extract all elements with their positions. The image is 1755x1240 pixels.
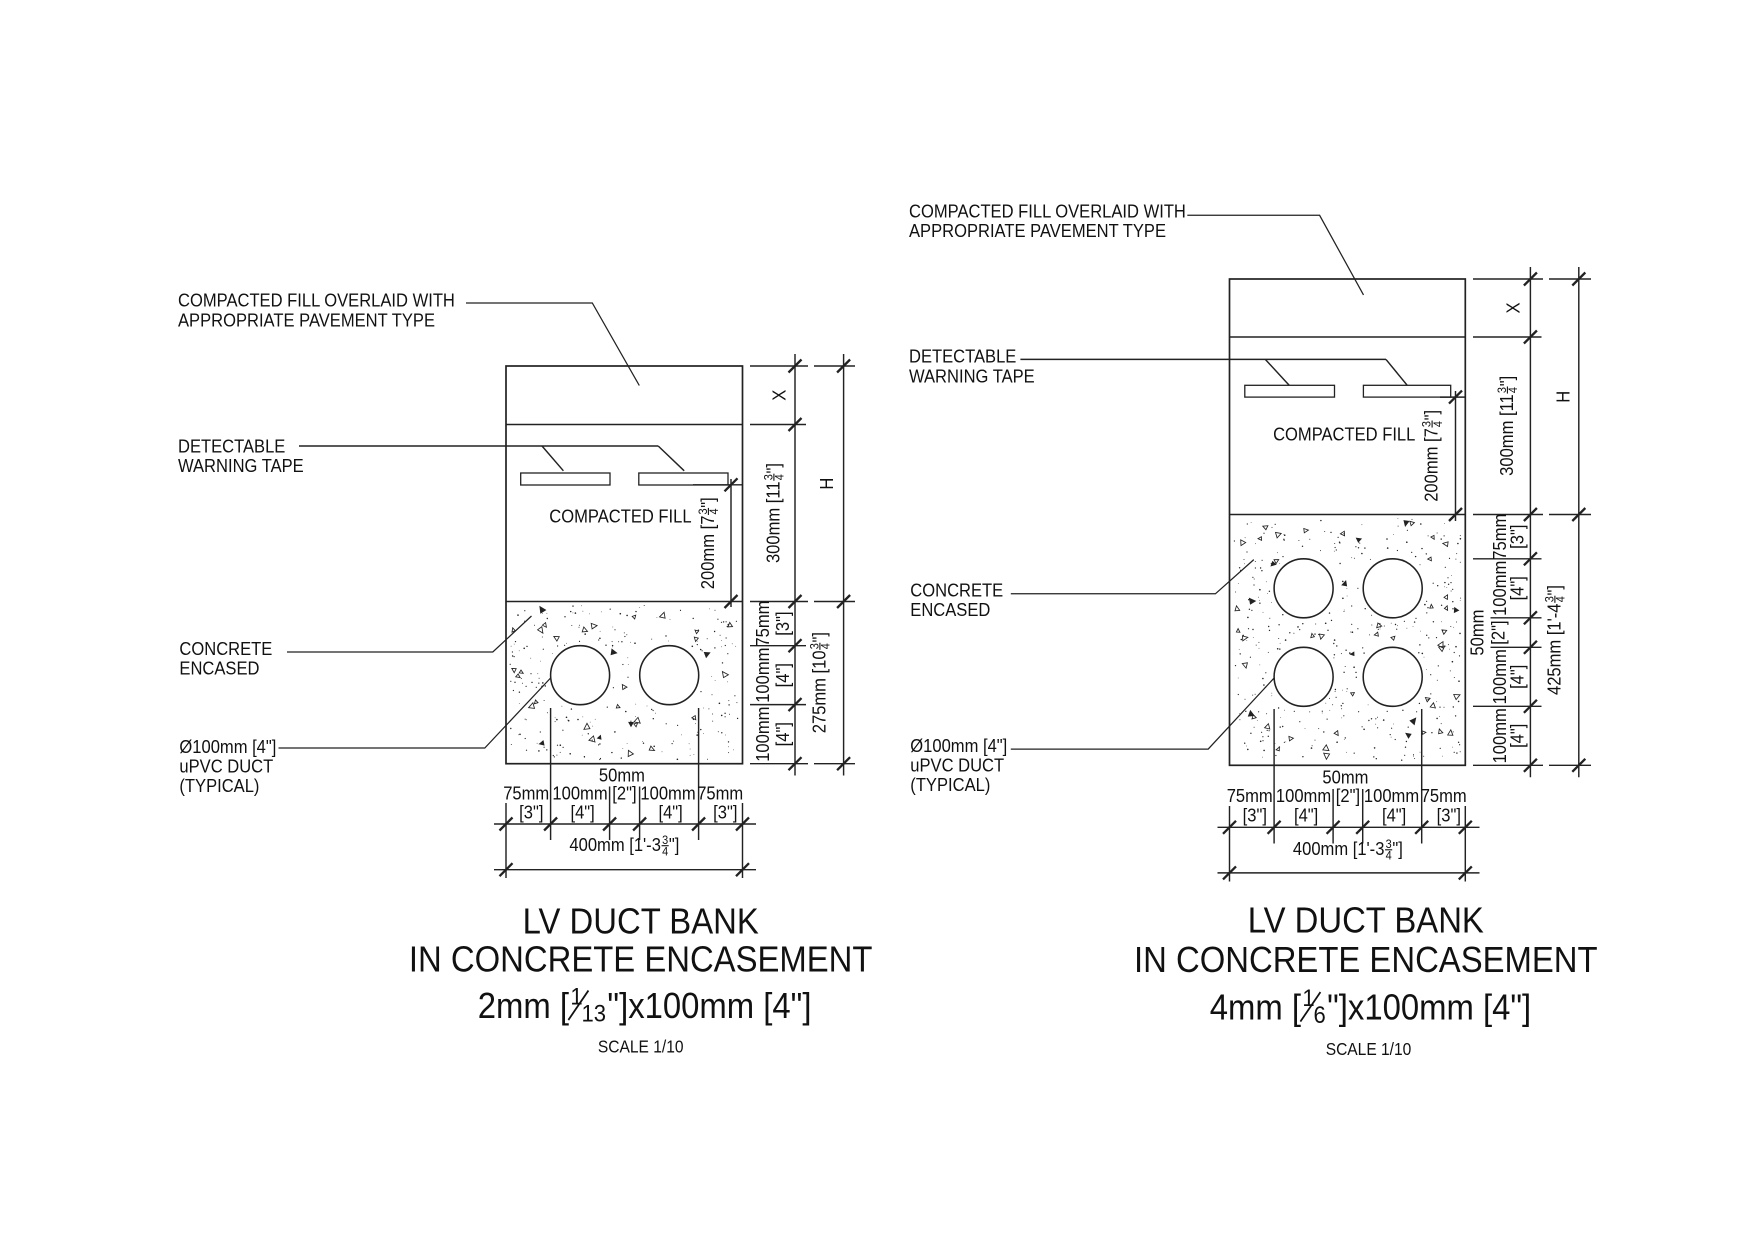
svg-text:(TYPICAL): (TYPICAL): [179, 775, 259, 796]
svg-text:"]: "]: [669, 834, 679, 855]
svg-text:75mm: 75mm: [697, 783, 743, 804]
svg-text:Ø100mm [4"]: Ø100mm [4"]: [910, 735, 1007, 756]
svg-text:uPVC DUCT: uPVC DUCT: [910, 755, 1004, 776]
svg-text:"]: "]: [1421, 410, 1442, 420]
svg-text:100mm: 100mm: [1276, 785, 1331, 806]
svg-text:"]: "]: [808, 632, 829, 642]
svg-text:425mm [1'-4: 425mm [1'-4: [1543, 603, 1564, 695]
svg-text:300mm [11: 300mm [11: [762, 481, 783, 563]
svg-text:[4"]: [4"]: [658, 802, 682, 823]
svg-text:400mm [1'-3: 400mm [1'-3: [569, 834, 661, 855]
svg-text:4: 4: [1386, 850, 1393, 863]
svg-text:"]: "]: [697, 497, 718, 507]
svg-text:[2"]: [2"]: [1336, 785, 1360, 806]
svg-text:75mm: 75mm: [1227, 785, 1273, 806]
svg-text:COMPACTED FILL OVERLAID WITH: COMPACTED FILL OVERLAID WITH: [909, 201, 1186, 222]
svg-text:IN CONCRETE ENCASEMENT: IN CONCRETE ENCASEMENT: [409, 940, 873, 980]
svg-text:APPROPRIATE PAVEMENT TYPE: APPROPRIATE PAVEMENT TYPE: [909, 220, 1166, 241]
svg-text:100mm: 100mm: [552, 783, 607, 804]
svg-text:WARNING TAPE: WARNING TAPE: [909, 365, 1035, 386]
svg-text:"]: "]: [762, 463, 783, 473]
svg-text:COMPACTED FILL: COMPACTED FILL: [1273, 424, 1416, 445]
svg-text:100mm: 100mm: [640, 783, 695, 804]
svg-text:[4"]: [4"]: [1506, 665, 1527, 689]
svg-text:[2"]: [2"]: [612, 783, 636, 804]
svg-text:DETECTABLE: DETECTABLE: [909, 346, 1016, 367]
svg-text:[4"]: [4"]: [570, 802, 594, 823]
svg-text:DETECTABLE: DETECTABLE: [178, 436, 285, 457]
svg-text:"]x100mm [4"]: "]x100mm [4"]: [1327, 988, 1531, 1028]
svg-text:LV DUCT BANK: LV DUCT BANK: [523, 902, 759, 942]
svg-text:X: X: [1502, 302, 1523, 313]
svg-text:WARNING TAPE: WARNING TAPE: [178, 455, 304, 476]
svg-text:[3"]: [3"]: [1437, 804, 1461, 825]
svg-text:Ø100mm [4"]: Ø100mm [4"]: [179, 736, 276, 757]
svg-text:uPVC DUCT: uPVC DUCT: [179, 756, 273, 777]
svg-text:200mm [7: 200mm [7: [1421, 428, 1442, 502]
svg-text:100mm: 100mm: [1364, 785, 1419, 806]
svg-text:100mm: 100mm: [752, 707, 773, 762]
svg-text:ENCASED: ENCASED: [179, 658, 259, 679]
svg-text:50mm: 50mm: [1466, 610, 1487, 656]
svg-text:75mm: 75mm: [503, 783, 549, 804]
svg-text:ENCASED: ENCASED: [910, 599, 990, 620]
svg-text:4: 4: [1508, 386, 1521, 393]
svg-text:H: H: [1552, 391, 1573, 403]
svg-text:CONCRETE: CONCRETE: [910, 580, 1003, 601]
svg-text:[4"]: [4"]: [1506, 724, 1527, 748]
svg-text:[3"]: [3"]: [519, 802, 543, 823]
svg-text:"]x100mm [4"]: "]x100mm [4"]: [607, 986, 811, 1026]
svg-text:"]: "]: [1392, 838, 1402, 859]
svg-text:275mm [10: 275mm [10: [808, 650, 829, 733]
svg-text:2mm [: 2mm [: [478, 986, 570, 1026]
svg-text:[4"]: [4"]: [1382, 804, 1406, 825]
svg-text:COMPACTED FILL: COMPACTED FILL: [549, 506, 692, 527]
svg-text:[3"]: [3"]: [713, 802, 737, 823]
svg-text:[3"]: [3"]: [772, 611, 793, 635]
svg-text:4: 4: [820, 643, 833, 650]
svg-text:[4"]: [4"]: [1506, 576, 1527, 600]
svg-text:[2"]: [2"]: [1487, 620, 1508, 644]
svg-text:[4"]: [4"]: [1294, 804, 1318, 825]
svg-text:4: 4: [774, 474, 787, 481]
svg-text:APPROPRIATE PAVEMENT TYPE: APPROPRIATE PAVEMENT TYPE: [178, 309, 435, 330]
svg-text:400mm [1'-3: 400mm [1'-3: [1293, 838, 1385, 859]
svg-text:4: 4: [1555, 596, 1568, 603]
svg-text:[4"]: [4"]: [772, 722, 793, 746]
svg-text:75mm: 75mm: [752, 601, 773, 647]
svg-text:6: 6: [1314, 1001, 1326, 1028]
svg-text:"]: "]: [1496, 376, 1517, 386]
svg-text:SCALE 1/10: SCALE 1/10: [1326, 1040, 1412, 1059]
svg-text:H: H: [816, 478, 837, 490]
svg-text:13: 13: [582, 999, 607, 1026]
svg-text:[3"]: [3"]: [1506, 525, 1527, 549]
svg-text:300mm [11: 300mm [11: [1496, 394, 1517, 476]
svg-text:"]: "]: [1543, 585, 1564, 595]
svg-text:4mm [: 4mm [: [1210, 988, 1302, 1028]
svg-text:4: 4: [709, 508, 722, 515]
svg-text:LV DUCT BANK: LV DUCT BANK: [1248, 901, 1484, 941]
svg-text:[4"]: [4"]: [772, 663, 793, 687]
svg-text:IN CONCRETE ENCASEMENT: IN CONCRETE ENCASEMENT: [1134, 941, 1598, 981]
svg-text:4: 4: [662, 846, 669, 859]
svg-text:75mm: 75mm: [1421, 785, 1467, 806]
svg-text:100mm: 100mm: [752, 648, 773, 703]
svg-text:SCALE 1/10: SCALE 1/10: [598, 1038, 684, 1057]
svg-text:CONCRETE: CONCRETE: [179, 638, 272, 659]
svg-text:4: 4: [1432, 420, 1445, 427]
svg-text:[3"]: [3"]: [1243, 804, 1267, 825]
svg-text:COMPACTED FILL OVERLAID WITH: COMPACTED FILL OVERLAID WITH: [178, 290, 455, 311]
svg-text:X: X: [768, 389, 789, 400]
svg-text:200mm [7: 200mm [7: [697, 516, 718, 590]
svg-text:(TYPICAL): (TYPICAL): [910, 774, 990, 795]
